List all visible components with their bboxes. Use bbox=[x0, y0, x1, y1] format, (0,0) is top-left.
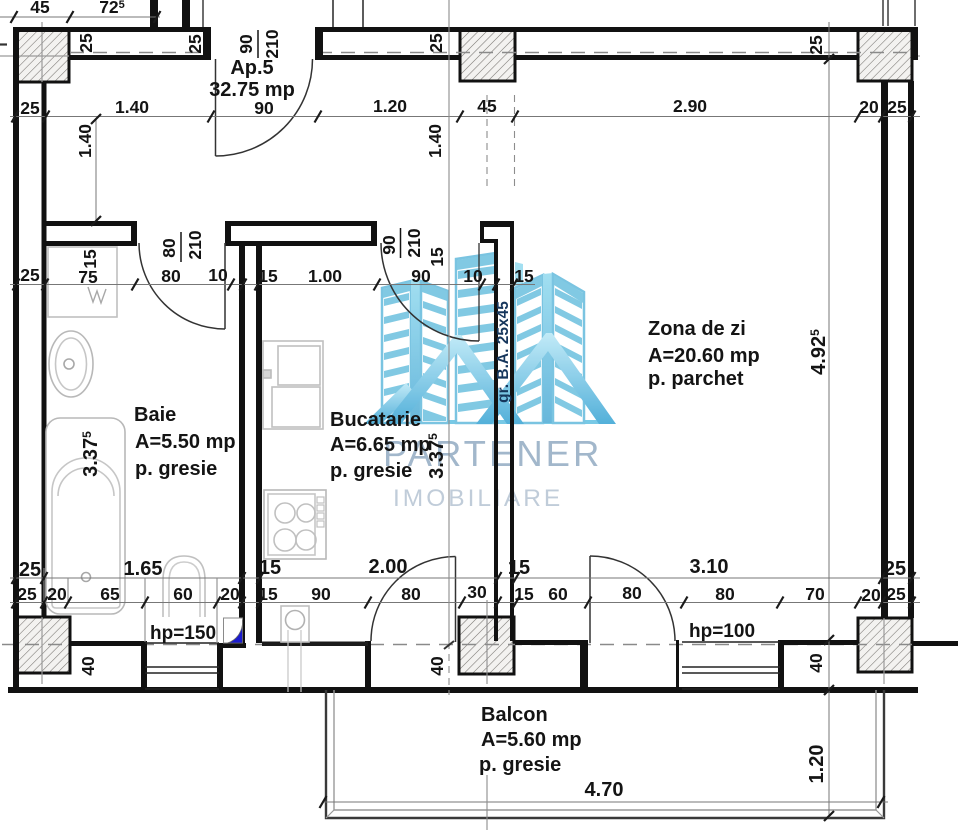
svg-text:25: 25 bbox=[884, 558, 906, 580]
svg-text:210: 210 bbox=[404, 228, 424, 257]
svg-text:40: 40 bbox=[427, 656, 447, 676]
svg-text:1.20: 1.20 bbox=[373, 96, 407, 116]
svg-text:15: 15 bbox=[508, 557, 530, 579]
svg-text:1.00: 1.00 bbox=[308, 266, 342, 286]
svg-text:1.65: 1.65 bbox=[124, 558, 163, 580]
svg-text:gr. B.A. 25x45: gr. B.A. 25x45 bbox=[495, 301, 512, 403]
svg-text:Baie: Baie bbox=[134, 404, 176, 426]
svg-text:15: 15 bbox=[259, 557, 281, 579]
svg-text:20: 20 bbox=[859, 97, 879, 117]
svg-text:p. gresie: p. gresie bbox=[330, 460, 412, 482]
svg-text:1.40: 1.40 bbox=[425, 124, 445, 158]
svg-text:10: 10 bbox=[208, 265, 228, 285]
svg-text:80: 80 bbox=[161, 266, 181, 286]
svg-text:40: 40 bbox=[78, 656, 98, 676]
svg-text:4.70: 4.70 bbox=[585, 779, 624, 801]
svg-text:A=20.60 mp: A=20.60 mp bbox=[648, 345, 760, 367]
svg-text:30: 30 bbox=[467, 582, 487, 602]
svg-text:hp=100: hp=100 bbox=[689, 621, 755, 642]
svg-text:15: 15 bbox=[514, 584, 534, 604]
svg-text:15: 15 bbox=[80, 249, 100, 269]
svg-text:20: 20 bbox=[47, 584, 67, 604]
svg-text:90: 90 bbox=[254, 98, 274, 118]
svg-text:70: 70 bbox=[805, 584, 825, 604]
svg-text:20: 20 bbox=[861, 585, 881, 605]
svg-text:Balcon: Balcon bbox=[481, 704, 548, 726]
svg-text:60: 60 bbox=[173, 584, 193, 604]
svg-text:15: 15 bbox=[514, 266, 534, 286]
svg-text:15: 15 bbox=[258, 584, 278, 604]
svg-text:IMOBILIARE: IMOBILIARE bbox=[393, 485, 563, 512]
svg-text:25: 25 bbox=[17, 584, 37, 604]
svg-text:15: 15 bbox=[258, 266, 278, 286]
svg-text:25: 25 bbox=[20, 265, 40, 285]
svg-text:32.75 mp: 32.75 mp bbox=[209, 79, 295, 101]
svg-text:40: 40 bbox=[806, 653, 826, 673]
svg-text:p. gresie: p. gresie bbox=[479, 754, 561, 776]
svg-text:p. gresie: p. gresie bbox=[135, 458, 217, 480]
svg-text:60: 60 bbox=[548, 584, 568, 604]
svg-text:80: 80 bbox=[622, 583, 642, 603]
svg-text:1.40: 1.40 bbox=[115, 97, 149, 117]
svg-text:25: 25 bbox=[426, 33, 446, 53]
svg-text:20: 20 bbox=[220, 584, 240, 604]
svg-text:210: 210 bbox=[262, 29, 282, 58]
svg-text:1.40: 1.40 bbox=[75, 124, 95, 158]
svg-text:25: 25 bbox=[19, 559, 41, 581]
svg-text:2.00: 2.00 bbox=[369, 556, 408, 578]
svg-text:65: 65 bbox=[100, 584, 120, 604]
svg-text:25: 25 bbox=[185, 34, 205, 54]
svg-text:90: 90 bbox=[311, 584, 331, 604]
svg-text:210: 210 bbox=[185, 230, 205, 259]
svg-text:25: 25 bbox=[886, 584, 906, 604]
svg-text:25: 25 bbox=[20, 98, 40, 118]
svg-text:90: 90 bbox=[236, 34, 256, 54]
svg-text:3.10: 3.10 bbox=[690, 556, 729, 578]
svg-text:A=5.50 mp: A=5.50 mp bbox=[135, 431, 236, 453]
svg-text:75: 75 bbox=[78, 267, 98, 287]
svg-text:10: 10 bbox=[463, 266, 483, 286]
svg-text:90: 90 bbox=[379, 235, 399, 255]
svg-text:p. parchet: p. parchet bbox=[648, 368, 744, 390]
svg-text:A=5.60 mp: A=5.60 mp bbox=[481, 729, 582, 751]
svg-text:2.90: 2.90 bbox=[673, 96, 707, 116]
svg-text:hp=150: hp=150 bbox=[150, 623, 216, 644]
svg-text:15: 15 bbox=[427, 247, 447, 267]
svg-text:80: 80 bbox=[159, 238, 179, 258]
svg-text:90: 90 bbox=[411, 266, 431, 286]
svg-text:1.20: 1.20 bbox=[806, 745, 828, 784]
svg-text:A=6.65 mp: A=6.65 mp bbox=[330, 434, 431, 456]
svg-text:Ap.5: Ap.5 bbox=[230, 57, 273, 79]
svg-text:80: 80 bbox=[401, 584, 421, 604]
svg-text:Zona de zi: Zona de zi bbox=[648, 318, 746, 340]
svg-text:Bucatarie: Bucatarie bbox=[330, 409, 421, 431]
svg-text:25: 25 bbox=[887, 97, 907, 117]
svg-text:25: 25 bbox=[806, 35, 826, 55]
svg-text:45: 45 bbox=[30, 0, 50, 17]
svg-text:45: 45 bbox=[477, 96, 497, 116]
svg-text:25: 25 bbox=[76, 33, 96, 53]
svg-text:80: 80 bbox=[715, 584, 735, 604]
